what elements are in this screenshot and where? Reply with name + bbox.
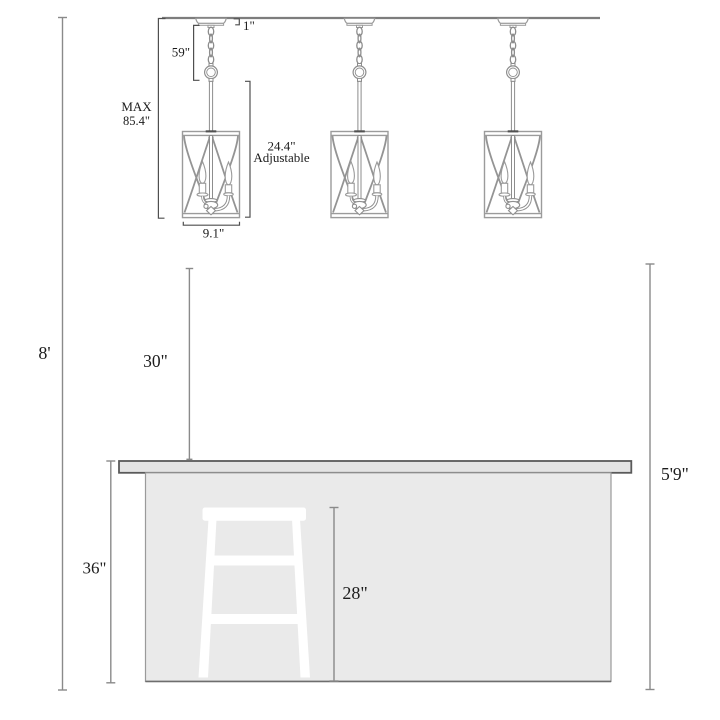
svg-text:28": 28" xyxy=(342,583,367,603)
svg-text:1": 1" xyxy=(243,18,255,33)
svg-text:Adjustable: Adjustable xyxy=(253,150,310,165)
svg-text:85.4": 85.4" xyxy=(123,114,150,128)
svg-text:59": 59" xyxy=(172,45,190,60)
svg-text:30": 30" xyxy=(143,351,168,371)
svg-text:8': 8' xyxy=(38,343,50,363)
svg-text:36": 36" xyxy=(83,559,107,578)
svg-text:5'9": 5'9" xyxy=(661,464,689,484)
svg-text:MAX: MAX xyxy=(121,99,152,114)
svg-text:9.1": 9.1" xyxy=(203,226,225,241)
